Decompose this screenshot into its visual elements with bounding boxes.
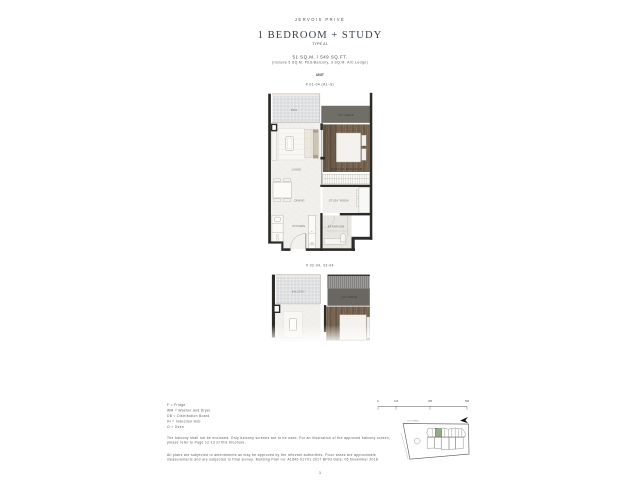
- svg-text:TYPE A1: TYPE A1: [312, 42, 328, 46]
- svg-text:WM = Washer and Dryer: WM = Washer and Dryer: [167, 408, 211, 412]
- svg-text:All plans are subjected to ame: All plans are subjected to amendments as…: [167, 453, 376, 457]
- svg-text:1: 1: [319, 471, 321, 475]
- svg-text:# 02-04, 03-04: # 02-04, 03-04: [306, 263, 334, 267]
- svg-text:A/C LEDGE: A/C LEDGE: [342, 296, 358, 299]
- svg-text:1M: 1M: [394, 399, 399, 403]
- svg-text:DB = Distribution Board: DB = Distribution Board: [167, 414, 210, 418]
- svg-text:measurements and are subjected: measurements and are subjected to final …: [167, 458, 378, 462]
- svg-text:51 SQ.M. / 549 SQ.FT.: 51 SQ.M. / 549 SQ.FT.: [293, 54, 348, 59]
- svg-text:WM: WM: [310, 243, 314, 245]
- svg-text:5M: 5M: [465, 399, 470, 403]
- svg-text:STUDY ROOM: STUDY ROOM: [329, 199, 349, 203]
- svg-text:LIVING: LIVING: [292, 168, 302, 172]
- svg-text:UNIT: UNIT: [316, 73, 324, 77]
- svg-text:(Include 5 SQ.M. PES/Balcony,: (Include 5 SQ.M. PES/Balcony, 3 SQ.M. A/…: [272, 61, 368, 65]
- svg-text:1 BEDROOM + STUDY: 1 BEDROOM + STUDY: [258, 30, 383, 41]
- svg-text:BATHROOM: BATHROOM: [328, 224, 345, 228]
- svg-text:BALCONY: BALCONY: [292, 289, 305, 293]
- svg-text:KITCHEN: KITCHEN: [292, 224, 305, 228]
- svg-text:O = Oven: O = Oven: [167, 425, 184, 429]
- svg-text:The balcony shall not be enclo: The balcony shall not be enclosed. Only …: [167, 436, 390, 440]
- svg-text:3M: 3M: [428, 399, 433, 403]
- svg-text:# 01-04 (A1-G): # 01-04 (A1-G): [306, 82, 334, 86]
- svg-text:IH = Induction Hob: IH = Induction Hob: [167, 419, 201, 423]
- svg-text:← 1ST STREET: ← 1ST STREET: [404, 421, 420, 423]
- svg-text:DINING: DINING: [294, 199, 304, 203]
- svg-text:F = Fridge: F = Fridge: [167, 403, 186, 407]
- svg-text:MASTER BEDROOM: MASTER BEDROOM: [331, 167, 362, 171]
- svg-text:please refer to Page 12-13 of: please refer to Page 12-13 of this broch…: [167, 441, 246, 445]
- svg-text:PES: PES: [291, 108, 297, 112]
- svg-text:JERVOIS PRIVÉ: JERVOIS PRIVÉ: [295, 17, 345, 22]
- svg-text:A/C LEDGE: A/C LEDGE: [338, 114, 354, 117]
